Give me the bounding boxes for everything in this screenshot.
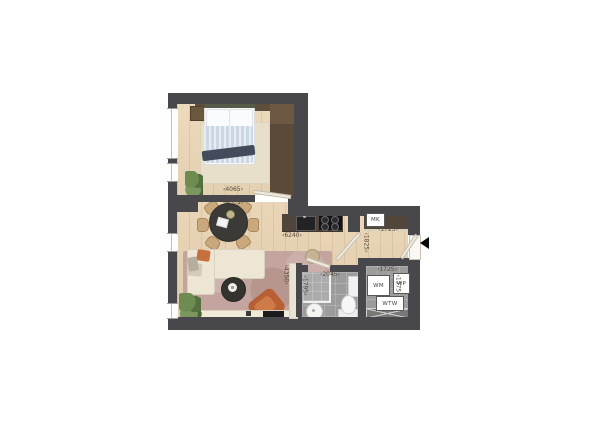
sofa-cushion-orange <box>196 249 210 262</box>
window <box>167 233 178 252</box>
dim-bedroom-width: ‹4065› <box>213 186 253 193</box>
wall <box>168 250 177 303</box>
coffee-table-decor <box>228 283 237 292</box>
entrance-arrow-icon <box>420 237 429 249</box>
window <box>167 163 178 182</box>
dim-living-width-top: ‹4065› <box>213 199 253 206</box>
dining-chair <box>247 218 259 232</box>
dim-hall-width: ‹1725› <box>368 226 408 233</box>
dim-hall-depth: ‹1825› <box>363 223 370 263</box>
wall <box>348 216 360 232</box>
dim-kitchen-width: ‹6240› <box>272 232 312 239</box>
wall <box>300 206 420 216</box>
stove-burner <box>321 223 329 231</box>
dining-table <box>209 203 248 242</box>
kitchen-sink <box>296 216 316 231</box>
wall <box>168 93 177 108</box>
washing-machine: WM <box>367 275 390 296</box>
dim-bedroom-depth: ‹3300› <box>278 130 285 170</box>
dim-tech-depth: ‹1375› <box>395 265 402 305</box>
wall <box>177 202 198 212</box>
dining-chair <box>197 218 209 232</box>
window <box>167 303 178 319</box>
bedroom-plant <box>185 171 203 197</box>
wall <box>294 93 308 205</box>
washbasin-drain <box>312 309 315 312</box>
dim-bathroom-depth: ‹1795› <box>302 266 309 306</box>
toilet-bowl <box>341 295 356 314</box>
wall <box>168 180 177 233</box>
wall <box>408 206 420 235</box>
dim-bathroom-width: ‹2045› <box>310 271 350 278</box>
wall <box>168 93 308 104</box>
stove-burner <box>331 223 339 231</box>
dim-living-depth: ‹4350› <box>283 255 290 295</box>
table-plant <box>226 210 235 219</box>
wall <box>358 265 366 317</box>
floor-plan: MK WM WP WTW ‹4065› ‹4065› ‹6240› ‹2045›… <box>0 0 600 424</box>
window <box>167 108 178 159</box>
nightstand <box>190 106 205 121</box>
sideboard-decor <box>246 311 251 316</box>
